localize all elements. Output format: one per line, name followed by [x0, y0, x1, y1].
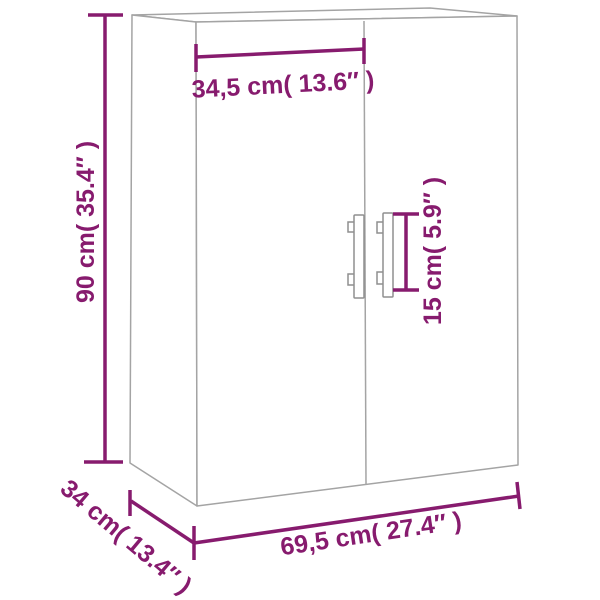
left-handle-bar: [354, 215, 364, 298]
total-width-dimension-label: 69,5 cm( 27.4″ ): [278, 507, 463, 562]
cabinet-left-side-face: [130, 15, 197, 506]
dimension-height: 90 cm( 35.4″ ): [72, 15, 123, 462]
total-width-right-tick: [517, 482, 520, 509]
dimension-diagram: 90 cm( 35.4″ ) 34,5 cm( 13.6″ ) 15 cm( 5…: [0, 0, 600, 600]
height-dimension-label: 90 cm( 35.4″ ): [72, 141, 100, 303]
handle-length-dimension-label: 15 cm( 5.9″ ): [419, 177, 447, 325]
right-handle-bar: [383, 213, 393, 297]
